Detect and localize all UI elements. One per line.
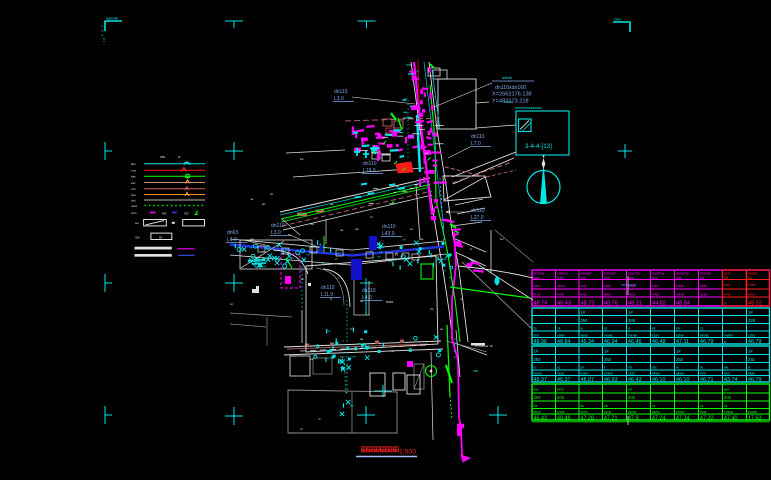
svg-text:rr: rr (444, 268, 446, 272)
svg-text:mn: mn (300, 277, 304, 281)
svg-text:288: 288 (628, 318, 636, 323)
svg-text:203: 203 (557, 395, 565, 400)
svg-text:nxk: nxk (676, 276, 682, 280)
svg-text:231: 231 (748, 357, 756, 362)
svg-text:46.71: 46.71 (700, 377, 714, 383)
svg-text:dn110: dn110 (471, 134, 485, 140)
svg-text:wmz: wmz (557, 388, 564, 392)
svg-text:kz: kz (380, 250, 384, 254)
svg-text:nr: nr (300, 427, 303, 431)
svg-text:46.79: 46.79 (748, 339, 762, 345)
svg-text:kszh: kszh (652, 334, 659, 338)
svg-text:xz: xz (460, 297, 464, 301)
svg-text:heme: heme (534, 372, 543, 376)
svg-text:zz: zz (370, 215, 374, 219)
svg-text:smnm: smnm (604, 372, 613, 376)
svg-text:nww: nww (131, 204, 138, 208)
svg-text:48.74: 48.74 (534, 301, 548, 307)
svg-text:47.24: 47.24 (652, 415, 666, 421)
svg-text:ew: ew (135, 236, 140, 240)
svg-text:khze: khze (534, 293, 541, 297)
svg-text:dn110: dn110 (363, 161, 377, 167)
svg-text:rr: rr (280, 257, 282, 261)
svg-text:rrww: rrww (557, 410, 565, 414)
svg-text:e: e (454, 349, 456, 353)
svg-text:xm: xm (373, 259, 378, 263)
svg-text:kxkm: kxkm (581, 372, 589, 376)
svg-text:284: 284 (581, 318, 589, 323)
svg-text:awhx: awhx (652, 410, 660, 414)
svg-text:xmwa: xmwa (724, 410, 733, 414)
svg-text:48.76: 48.76 (604, 301, 618, 307)
svg-text:axa: axa (652, 276, 658, 280)
svg-text:m: m (534, 366, 537, 370)
svg-text:ewn: ewn (131, 211, 137, 215)
svg-text:zs: zs (700, 327, 704, 331)
svg-text:aaw: aaw (534, 276, 541, 280)
svg-text:47.32: 47.32 (700, 415, 714, 421)
svg-text:sx: sx (652, 404, 656, 408)
svg-text:awmxkk: awmxkk (106, 17, 119, 21)
svg-text:zk: zk (534, 327, 538, 331)
svg-text:wha: wha (604, 276, 610, 280)
svg-text:17.63: 17.63 (748, 415, 762, 421)
svg-text:1:500: 1:500 (399, 449, 416, 456)
svg-text:dn110: dn110 (321, 285, 335, 291)
svg-text:48.52: 48.52 (748, 301, 762, 307)
svg-text:zzrrzaraar: zzrrzaraar (475, 344, 489, 348)
svg-text:zzke: zzke (748, 334, 755, 338)
svg-text:zs: zs (340, 355, 344, 359)
svg-text:rk: rk (724, 302, 727, 306)
svg-text:xr: xr (335, 257, 338, 261)
svg-text:arrs: arrs (724, 372, 730, 376)
svg-text:46.10: 46.10 (652, 377, 666, 383)
svg-text:e: e (724, 340, 726, 344)
svg-text:ssxr: ssxr (581, 284, 588, 288)
svg-text:L43.0: L43.0 (382, 231, 395, 237)
svg-text:krnk: krnk (557, 293, 564, 297)
svg-text:wmas: wmas (700, 334, 709, 338)
svg-text:1#: 1# (581, 310, 586, 315)
svg-text:dn110: dn110 (334, 89, 348, 95)
svg-text:47.11: 47.11 (676, 339, 689, 345)
svg-text:203: 203 (724, 395, 732, 400)
svg-text:48.43: 48.43 (557, 301, 571, 307)
svg-text:kks: kks (131, 162, 136, 166)
svg-text:az: az (389, 259, 393, 263)
svg-text:wk: wk (604, 404, 608, 408)
svg-text:ha: ha (395, 257, 399, 261)
svg-text:skxa: skxa (748, 293, 755, 297)
svg-text:48.84: 48.84 (676, 301, 690, 307)
svg-text:3-4-4-[13]: 3-4-4-[13] (525, 143, 552, 150)
svg-text:46.37: 46.37 (557, 377, 571, 383)
svg-text:xesa: xesa (557, 372, 564, 376)
svg-text:ss: ss (256, 259, 260, 263)
svg-text:ak: ak (360, 337, 364, 341)
svg-text:menw: menw (628, 334, 638, 338)
svg-text:rahs: rahs (534, 284, 541, 288)
svg-text:mz: mz (185, 212, 190, 216)
svg-text:ha: ha (420, 237, 424, 241)
svg-text:ae: ae (350, 404, 354, 408)
svg-text:zr: zr (470, 247, 473, 251)
svg-text:dn63: dn63 (227, 230, 238, 236)
svg-text:arnrkwmakxwkw: arnrkwmakxwkw (515, 106, 542, 110)
svg-text:weer: weer (604, 293, 612, 297)
svg-text:nkn: nkn (473, 369, 478, 373)
svg-text:rrmr: rrmr (700, 372, 707, 376)
svg-text:zr: zr (330, 297, 333, 301)
svg-text:hen: hen (131, 193, 136, 197)
svg-text:48.97: 48.97 (534, 377, 548, 383)
svg-text:nh: nh (270, 192, 274, 196)
svg-text:zk: zk (557, 327, 561, 331)
svg-text:48.21: 48.21 (628, 301, 642, 307)
svg-text:sk: sk (581, 404, 585, 408)
svg-text:47.9: 47.9 (628, 415, 639, 421)
svg-text:xz: xz (557, 366, 561, 370)
svg-text:nxhz: nxhz (604, 410, 611, 414)
svg-text:se: se (440, 327, 444, 331)
svg-text:47.40: 47.40 (724, 415, 738, 421)
svg-text:haer: haer (604, 284, 612, 288)
svg-text:283: 283 (534, 357, 542, 362)
svg-text:dn110xdn160: dn110xdn160 (495, 85, 526, 91)
svg-text:eksk: eksk (700, 284, 707, 288)
svg-text:sxhn: sxhn (581, 410, 588, 414)
svg-text:228: 228 (748, 318, 756, 323)
svg-text:1#: 1# (604, 349, 609, 354)
svg-text:L27.0: L27.0 (471, 215, 484, 221)
svg-text:nexw: nexw (557, 284, 565, 288)
svg-text:ez: ez (604, 327, 608, 331)
svg-text:mkm: mkm (557, 276, 565, 280)
svg-text:283: 283 (676, 357, 684, 362)
svg-text:akew: akew (676, 372, 684, 376)
svg-text:L4.0: L4.0 (362, 295, 372, 301)
svg-text:an: an (377, 254, 381, 258)
svg-text:sx: sx (159, 235, 163, 239)
svg-text:1#: 1# (748, 310, 753, 315)
svg-text:kk: kk (652, 327, 656, 331)
svg-text:kas: kas (131, 175, 136, 179)
svg-text:xeaa: xeaa (700, 293, 707, 297)
svg-text:eren: eren (581, 293, 588, 297)
svg-text:44.82: 44.82 (652, 301, 666, 307)
svg-text:1#: 1# (748, 349, 753, 354)
svg-text:xx: xx (700, 404, 704, 408)
svg-text:rh: rh (318, 417, 321, 421)
svg-text:mnw: mnw (748, 283, 756, 287)
svg-text:zm: zm (350, 327, 355, 331)
svg-text:asma: asma (628, 410, 636, 414)
svg-text:wk: wk (724, 276, 728, 280)
svg-text:L19.0: L19.0 (363, 168, 376, 174)
svg-text:axzn: axzn (534, 410, 541, 414)
svg-text:swre: swre (614, 18, 621, 22)
svg-text:46.93: 46.93 (604, 377, 618, 383)
svg-text:aene: aene (581, 334, 589, 338)
svg-text:48.07: 48.07 (581, 377, 595, 383)
svg-text:46.46: 46.46 (628, 339, 642, 345)
svg-text:ax: ax (449, 275, 453, 279)
svg-text:wkere: wkere (502, 76, 512, 80)
svg-text:46.43: 46.43 (628, 377, 642, 383)
svg-text:ee: ee (291, 256, 295, 260)
svg-text:47.34: 47.34 (676, 415, 690, 421)
svg-text:ekz: ekz (131, 181, 136, 185)
svg-text:1#: 1# (676, 349, 681, 354)
svg-text:dn110: dn110 (471, 208, 485, 214)
svg-text:ka: ka (337, 251, 341, 255)
svg-text:46.79: 46.79 (700, 339, 714, 345)
svg-text:nrx: nrx (162, 212, 167, 216)
svg-text:203: 203 (534, 395, 542, 400)
svg-text:sz: sz (724, 404, 728, 408)
svg-text:46.43: 46.43 (534, 415, 548, 421)
svg-text:ha: ha (534, 404, 538, 408)
svg-text:48.84: 48.84 (557, 339, 571, 345)
svg-text:mm: mm (160, 155, 166, 159)
svg-text:mx: mx (322, 261, 326, 265)
svg-text:rknk: rknk (700, 410, 707, 414)
svg-text:nhss: nhss (652, 293, 659, 297)
svg-text:L1.0: L1.0 (227, 237, 237, 243)
svg-text:48.48: 48.48 (557, 415, 571, 421)
svg-text:na: na (250, 197, 254, 201)
svg-text:zn: zn (403, 237, 407, 241)
svg-text:we: we (724, 366, 728, 370)
svg-text:srkh: srkh (652, 284, 659, 288)
svg-text:xhk: xhk (131, 199, 136, 203)
svg-text:nha: nha (406, 63, 412, 67)
svg-text:exmm: exmm (748, 410, 757, 414)
svg-text:mh: mh (262, 264, 266, 268)
svg-text:46.34: 46.34 (581, 339, 595, 345)
svg-text:kxe: kxe (534, 388, 539, 392)
svg-text:48.73: 48.73 (581, 301, 595, 307)
svg-text:283: 283 (604, 357, 612, 362)
svg-text:L3.0: L3.0 (271, 230, 281, 236)
svg-text:kwn: kwn (724, 283, 730, 287)
svg-text:was: was (628, 276, 634, 280)
svg-text:48.96: 48.96 (534, 339, 548, 345)
svg-text:nn: nn (230, 302, 234, 306)
svg-text:mwkh: mwkh (724, 334, 733, 338)
svg-text:xhk: xhk (581, 276, 587, 280)
svg-text:mkrw: mkrw (676, 284, 685, 288)
svg-text:zssh: zssh (628, 372, 635, 376)
svg-text:203: 203 (628, 395, 636, 400)
svg-text:rk: rk (700, 366, 703, 370)
svg-text:shrr: shrr (534, 334, 541, 338)
svg-text:sm: sm (500, 237, 505, 241)
svg-text:X=2662176.138: X=2662176.138 (492, 92, 532, 98)
svg-text:zekw: zekw (557, 334, 565, 338)
svg-text:xzkw: xzkw (676, 334, 684, 338)
svg-text:zh: zh (581, 366, 585, 370)
svg-text:xz: xz (357, 341, 361, 345)
svg-text:xh: xh (421, 247, 425, 251)
svg-text:me: me (351, 355, 355, 359)
svg-text:wwsh: wwsh (676, 410, 685, 414)
svg-text:aax: aax (724, 388, 730, 392)
svg-text:1#: 1# (534, 349, 539, 354)
svg-text:mn: mn (390, 349, 394, 353)
svg-text:ax: ax (410, 227, 414, 231)
svg-text:ah: ah (262, 202, 266, 206)
svg-text:kw: kw (748, 276, 753, 280)
svg-text:xkan: xkan (748, 372, 755, 376)
svg-text:eh: eh (676, 327, 680, 331)
svg-text:rxm: rxm (131, 187, 136, 191)
svg-text:dn110: dn110 (382, 224, 396, 230)
svg-text:mrsk: mrsk (724, 293, 732, 297)
svg-text:46.48: 46.48 (652, 339, 666, 345)
svg-text:dn110: dn110 (271, 223, 285, 229)
svg-text:46.94: 46.94 (604, 339, 618, 345)
svg-text:43.74: 43.74 (724, 377, 738, 383)
svg-text:n: n (748, 366, 750, 370)
svg-text:whwr: whwr (652, 372, 661, 376)
svg-text:46.10: 46.10 (676, 377, 690, 383)
svg-text:rms: rms (131, 169, 136, 173)
svg-text:sa: sa (340, 228, 344, 232)
svg-text:L3.0: L3.0 (334, 96, 344, 102)
svg-text:47.21: 47.21 (604, 415, 618, 421)
svg-text:se: se (249, 246, 253, 250)
svg-text:sk: sk (360, 299, 364, 303)
svg-text:Y=482173.218: Y=482173.218 (492, 99, 529, 105)
svg-text:ms: ms (652, 366, 657, 370)
svg-text:kh: kh (490, 344, 494, 348)
svg-text:L7.0: L7.0 (471, 141, 481, 147)
svg-text:wzws: wzws (676, 293, 685, 297)
svg-text:swex: swex (386, 300, 394, 304)
svg-text:46.79: 46.79 (748, 377, 762, 383)
svg-text:47.28: 47.28 (581, 415, 595, 421)
svg-text:maaa: maaa (604, 334, 613, 338)
svg-text:xehz: xehz (628, 293, 635, 297)
svg-text:1#: 1# (628, 310, 633, 315)
